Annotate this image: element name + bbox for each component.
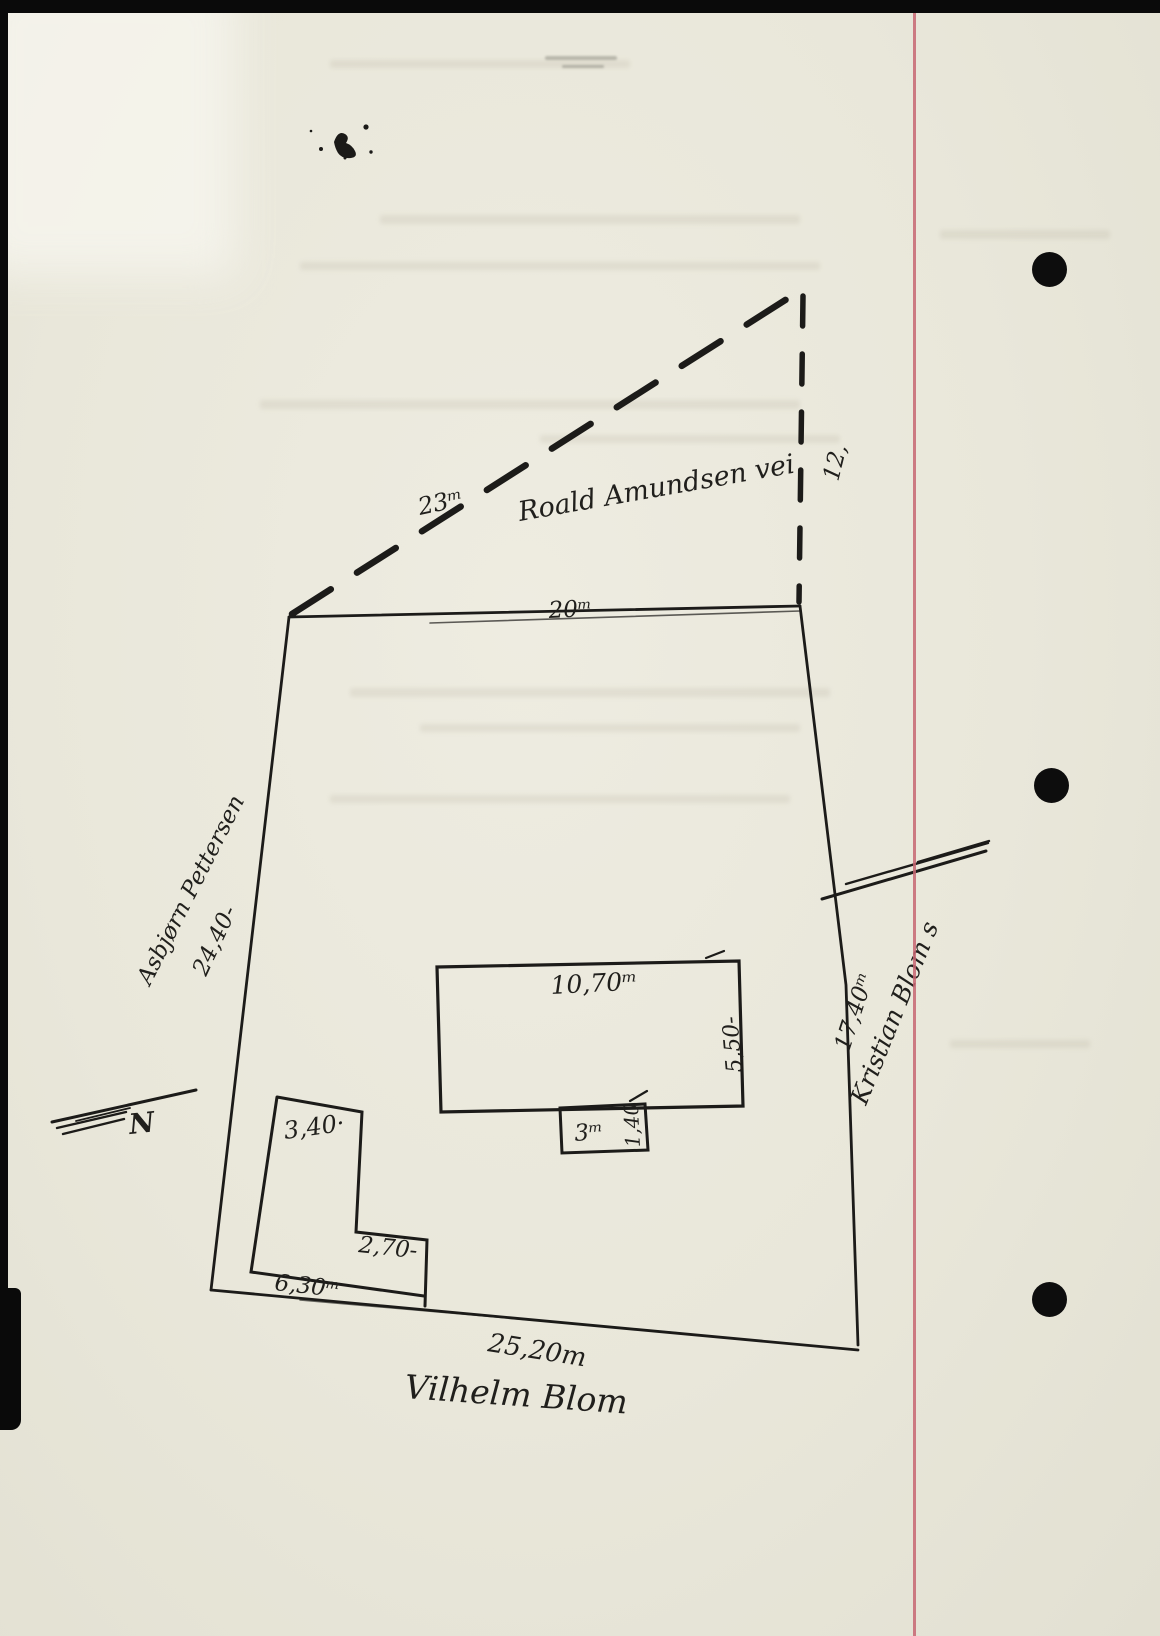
plot-top-width-label: 20ᵐ [547,596,593,624]
boundary-marker-icon [822,841,989,899]
scanned-deed-page: N 23ᵐ Roald Amundsen vei 12, 20ᵐ Asbjørn… [0,0,1160,1636]
street-frontage-left-label: 23ᵐ [414,484,465,521]
scan-edge-top [0,0,1160,13]
bottom-neighbor-label: Vilhelm Blom [403,1367,629,1421]
plot-boundary [211,606,858,1350]
annex-width-label: 3ᵐ [573,1119,604,1147]
punch-hole [1034,768,1069,803]
ink-blot [310,124,373,159]
punch-hole [1032,252,1067,287]
street-frontage-right-label: 12, [819,442,853,484]
street-boundary-dashed [292,290,803,614]
outbuilding-top-width-label: 3,40· [282,1109,346,1145]
scan-edge-corner [0,1288,21,1430]
margin-red-line [913,0,916,1636]
building-depth-label: 5,50- [718,1015,748,1073]
annex-depth-label: 1,40 [619,1102,645,1148]
north-arrow: N [52,1090,196,1141]
survey-sketch: N 23ᵐ Roald Amundsen vei 12, 20ᵐ Asbjørn… [0,0,1160,1636]
punch-hole [1032,1282,1067,1317]
street-name-label: Roald Amundsen vei [515,449,797,528]
scan-edge-left [0,0,8,1350]
north-label: N [126,1105,157,1141]
building-width-label: 10,70ᵐ [550,966,638,1000]
outbuilding-step-width-label: 2,70- [356,1232,418,1264]
plot-bottom-length-label: 25,20m [485,1328,589,1373]
plot-left-length-label: 24,40- [187,902,242,981]
